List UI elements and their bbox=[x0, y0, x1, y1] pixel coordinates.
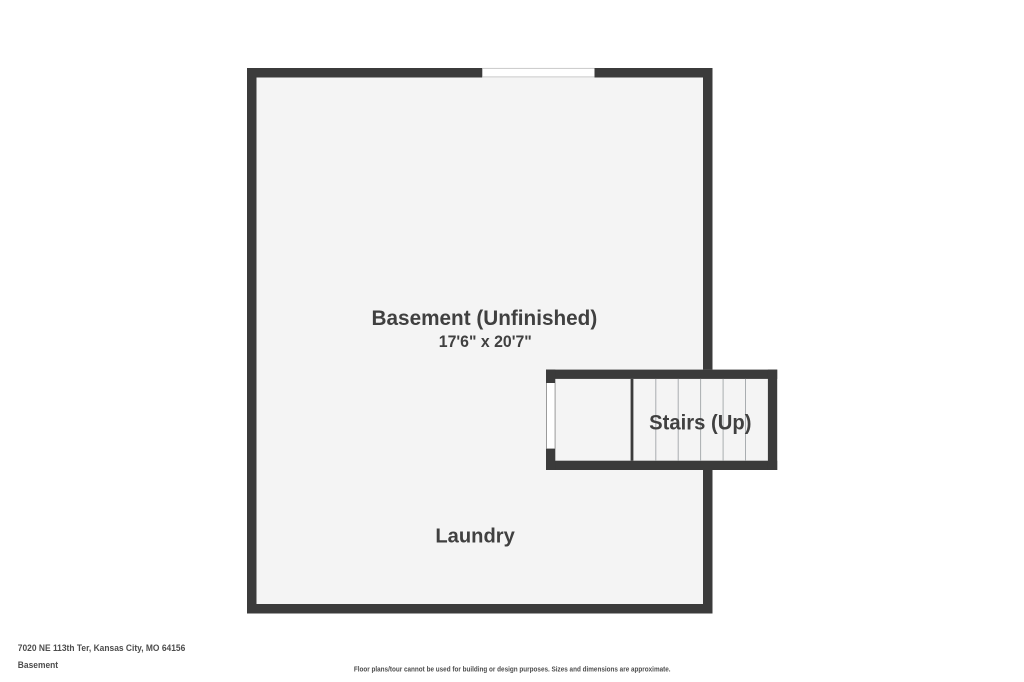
svg-text:Floor plans/tour cannot be use: Floor plans/tour cannot be used for buil… bbox=[354, 667, 671, 674]
svg-text:Stairs (Up): Stairs (Up) bbox=[649, 410, 751, 434]
svg-text:Basement: Basement bbox=[18, 660, 59, 671]
svg-text:7020 NE 113th Ter, Kansas City: 7020 NE 113th Ter, Kansas City, MO 64156 bbox=[18, 643, 186, 654]
svg-text:17'6" x 20'7": 17'6" x 20'7" bbox=[439, 332, 532, 351]
svg-text:Basement (Unfinished): Basement (Unfinished) bbox=[372, 306, 598, 330]
svg-text:Laundry: Laundry bbox=[435, 525, 515, 548]
